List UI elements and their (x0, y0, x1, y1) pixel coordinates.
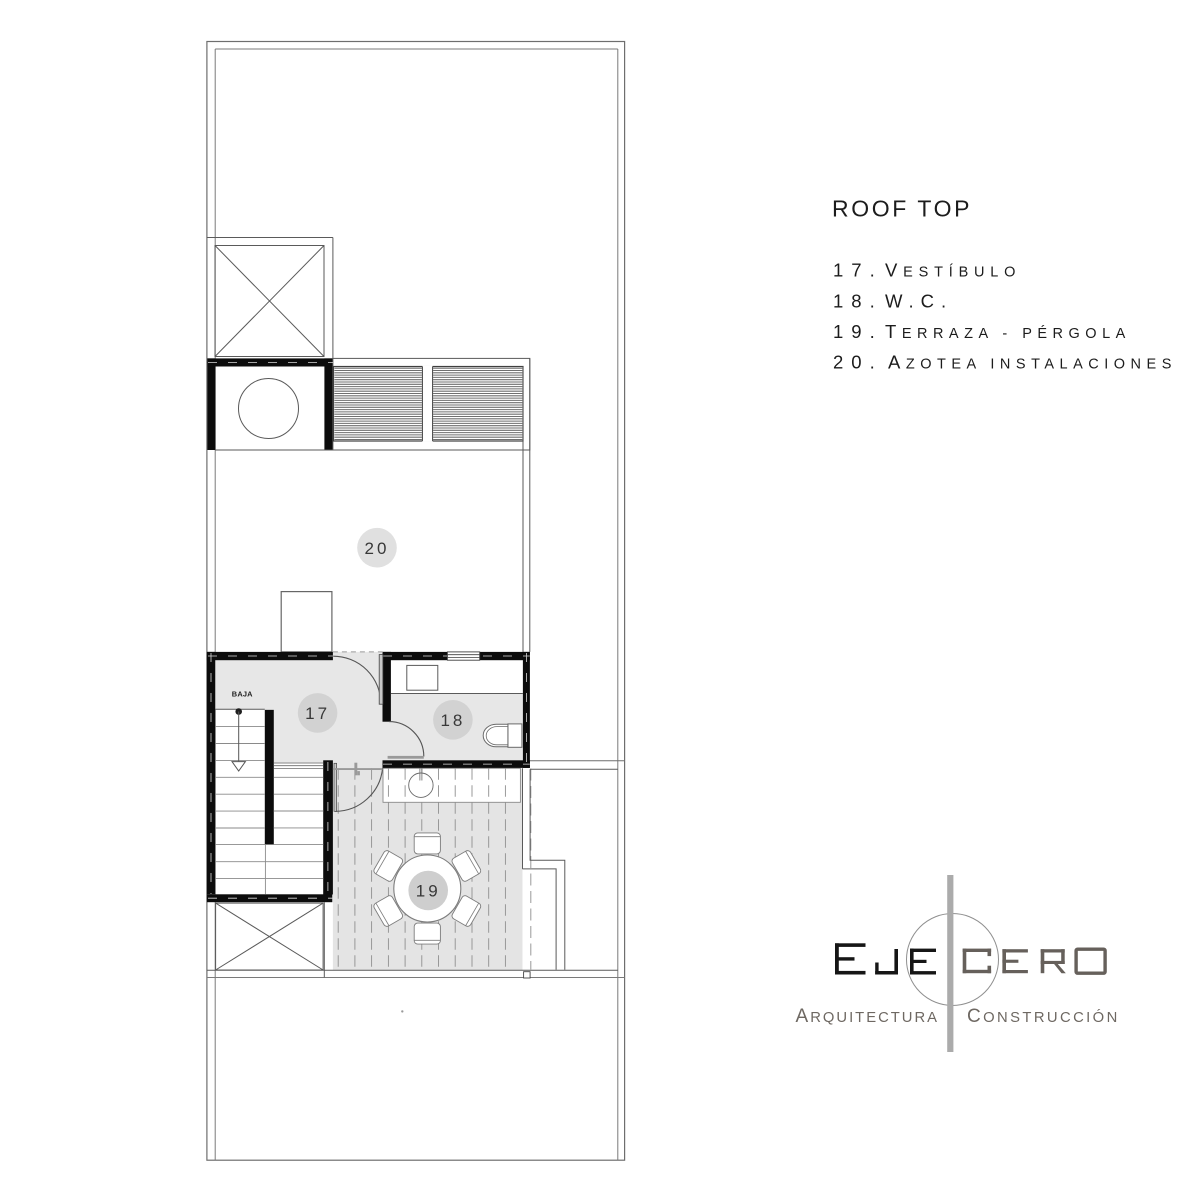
svg-text:CONSTRUCCIÓN: CONSTRUCCIÓN (967, 1006, 1120, 1027)
svg-text:W.C.: W.C. (885, 290, 953, 311)
svg-text:19: 19 (416, 882, 441, 901)
svg-text:17: 17 (305, 704, 330, 723)
svg-text:17.: 17. (833, 260, 883, 281)
svg-text:BAJA: BAJA (232, 690, 253, 699)
svg-text:ROOF TOP: ROOF TOP (832, 196, 972, 222)
svg-text:19.: 19. (833, 321, 883, 342)
svg-text:18.: 18. (833, 290, 883, 311)
svg-text:20.: 20. (833, 351, 883, 372)
svg-text:18: 18 (440, 711, 465, 730)
svg-text:20: 20 (365, 539, 390, 558)
svg-text:ARQUITECTURA: ARQUITECTURA (796, 1006, 940, 1027)
